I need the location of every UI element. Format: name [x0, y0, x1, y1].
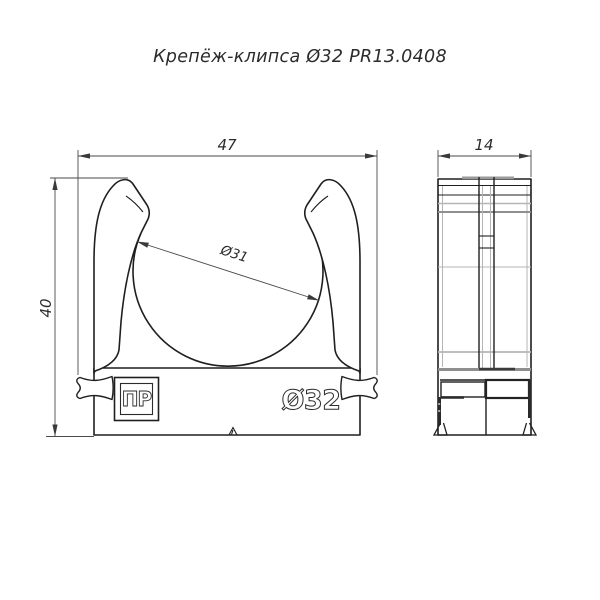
dim-width-value: 47	[217, 136, 237, 154]
arrowhead-right	[519, 153, 531, 158]
technical-drawing: Крепёж-клипса Ø32 PR13.0408 ПР Ø32	[0, 0, 600, 600]
right-wing-tab	[341, 377, 377, 400]
right-edge-rib	[528, 380, 532, 418]
arrowhead-right	[365, 153, 377, 158]
drawing-title: Крепёж-клипса Ø32 PR13.0408	[153, 47, 447, 67]
dim-depth-14: 14	[438, 136, 531, 177]
front-view: ПР Ø32	[77, 180, 377, 435]
arrowhead-left	[438, 153, 450, 158]
side-view	[434, 177, 536, 436]
left-wing-tab	[77, 377, 113, 400]
arrowhead-left	[78, 153, 90, 158]
dim-height-value: 40	[37, 298, 55, 317]
drawing-sheet: Крепёж-клипса Ø32 PR13.0408 ПР Ø32	[0, 0, 600, 600]
arrowhead-bottom	[52, 425, 57, 437]
logo-text: ПР	[122, 387, 152, 411]
arrowhead-top	[52, 178, 57, 190]
top-chamfer-band	[462, 177, 514, 180]
embossed-size-label: Ø32	[281, 385, 340, 416]
dim-depth-value: 14	[474, 136, 493, 154]
